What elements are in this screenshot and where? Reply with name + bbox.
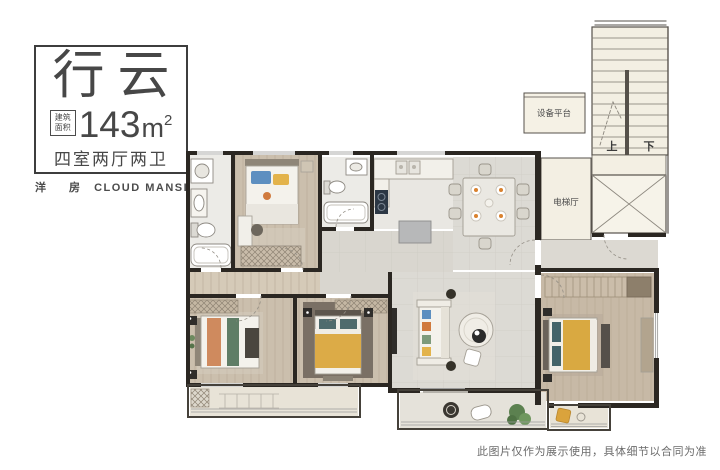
disclaimer-text: 此图片仅作为展示使用，具体细节以合同为准 — [477, 443, 707, 459]
area-superscript: 2 — [164, 112, 172, 129]
floor-plan: 上 下 电梯厅 设备平台 — [183, 18, 708, 443]
left-balcony-floor — [190, 387, 358, 417]
area-row: 建筑面积 143 m2 — [50, 109, 173, 140]
brand-line: 洋 房CLOUD MANSION — [35, 179, 208, 195]
stair-up-label: 上 — [607, 139, 618, 153]
floor-lamp — [446, 289, 456, 299]
title-card: 行云 建筑面积 143 m2 四室两厅两卫 — [34, 45, 188, 174]
elevator-hall-label: 电梯厅 — [553, 197, 579, 207]
area-label-badge: 建筑面积 — [50, 110, 76, 136]
wardrobe-b — [188, 300, 238, 313]
desk — [238, 216, 252, 246]
stair-divider — [625, 70, 629, 155]
area-unit: m2 — [141, 116, 172, 140]
bath1-toilet — [197, 223, 215, 237]
equipment-platform-label: 设备平台 — [537, 108, 571, 118]
plan-title: 行云 — [39, 49, 182, 104]
panda-pouf — [472, 329, 486, 343]
brand-cn: 洋 房 — [35, 182, 90, 194]
area-value: 143 — [79, 109, 141, 140]
master-dresser — [641, 318, 653, 372]
wardrobe-a — [241, 246, 301, 266]
bed-b-bench — [245, 328, 259, 358]
bath2-sink — [350, 163, 362, 171]
floorplan-page: 行云 建筑面积 143 m2 四室两厅两卫 洋 房CLOUD MANSION — [0, 0, 720, 470]
bath2-toilet — [329, 181, 345, 193]
tv — [392, 308, 397, 354]
stair-elevator-core — [524, 21, 668, 240]
accent-stool — [463, 348, 481, 366]
master-balcony-chair — [556, 408, 571, 423]
balcony-chair — [443, 402, 459, 418]
stair-down-label: 下 — [644, 140, 655, 153]
master-bench — [601, 324, 610, 368]
room-spec: 四室两厅两卫 — [54, 145, 168, 170]
bath1-sink — [194, 195, 204, 211]
entry-vestibule-floor — [541, 240, 658, 268]
fridge — [399, 221, 431, 243]
washing-machine — [195, 164, 209, 178]
